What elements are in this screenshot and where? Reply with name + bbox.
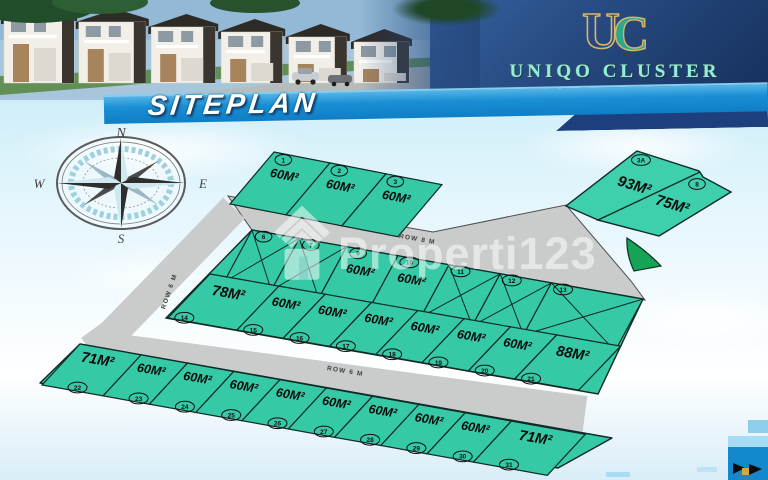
compass-rose: N S W E	[34, 126, 207, 246]
brand-logo: U C UNIQO CLUSTER SERPONG	[470, 2, 760, 98]
lot-number: 27	[320, 429, 328, 436]
uc-monogram-logo: U C	[555, 2, 675, 54]
lot-number: 22	[74, 385, 82, 392]
footer-mark-accent	[697, 467, 717, 472]
brand-name: UNIQO CLUSTER	[470, 61, 760, 83]
lot-number: 9	[356, 251, 360, 258]
lot-number: 30	[459, 454, 467, 461]
lot-number: 13	[559, 287, 567, 294]
lot-number: 15	[250, 327, 258, 334]
lot-number: 17	[342, 344, 350, 351]
lot-number: 11	[457, 269, 464, 276]
green-wedge	[627, 238, 661, 271]
siteplan-poster: N S W E 60M²160M²260M²393M²3A75M²86760M²…	[0, 0, 768, 480]
compass-east-label: E	[198, 176, 207, 191]
footer-mark-accent	[606, 472, 630, 477]
lot-number: 23	[135, 396, 143, 403]
lot-number: 10	[406, 260, 414, 267]
lot-number: 19	[435, 360, 443, 367]
lot-number: 14	[181, 315, 189, 322]
lot-number: 26	[274, 421, 282, 428]
compass-north-label: N	[115, 126, 126, 141]
footer-mark-accent	[728, 436, 768, 447]
lot-number: 24	[181, 404, 189, 411]
brand-subtitle: SERPONG	[470, 86, 760, 98]
lot-number: 25	[228, 412, 236, 419]
lot-number: 20	[481, 368, 489, 375]
lot-number: 1	[282, 157, 286, 164]
lot-number: 31	[505, 462, 513, 469]
properti123-logo-mark	[728, 447, 768, 480]
lot-number: 3A	[637, 157, 646, 164]
compass-south-label: S	[118, 231, 125, 246]
arrows-icon	[728, 447, 768, 480]
compass-west-label: W	[34, 176, 46, 191]
monogram-right: C	[613, 5, 649, 54]
lot-number: 16	[296, 335, 304, 342]
lot-number: 3	[393, 179, 397, 186]
header: U C UNIQO CLUSTER SERPONG	[0, 0, 768, 100]
lot-number: 12	[508, 278, 516, 285]
lot-number: 28	[366, 437, 374, 444]
lot-number: 29	[413, 445, 421, 452]
lot-number: 21	[527, 376, 535, 383]
lot-number: 6	[262, 234, 266, 241]
lot-number: 8	[695, 181, 699, 188]
footer-mark-accent	[748, 420, 768, 433]
lot-number: 7	[309, 242, 313, 249]
lot-number: 18	[389, 352, 397, 359]
lot-number: 2	[338, 168, 342, 175]
